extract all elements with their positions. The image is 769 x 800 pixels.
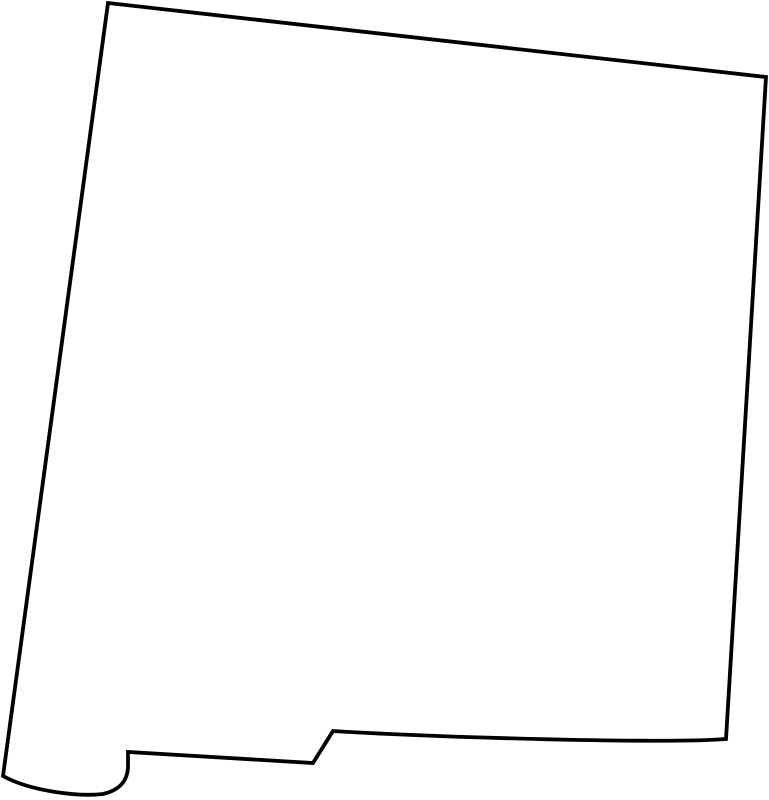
- map-canvas: [0, 0, 769, 800]
- new-mexico-outline: [3, 3, 766, 795]
- new-mexico-map: [0, 0, 769, 800]
